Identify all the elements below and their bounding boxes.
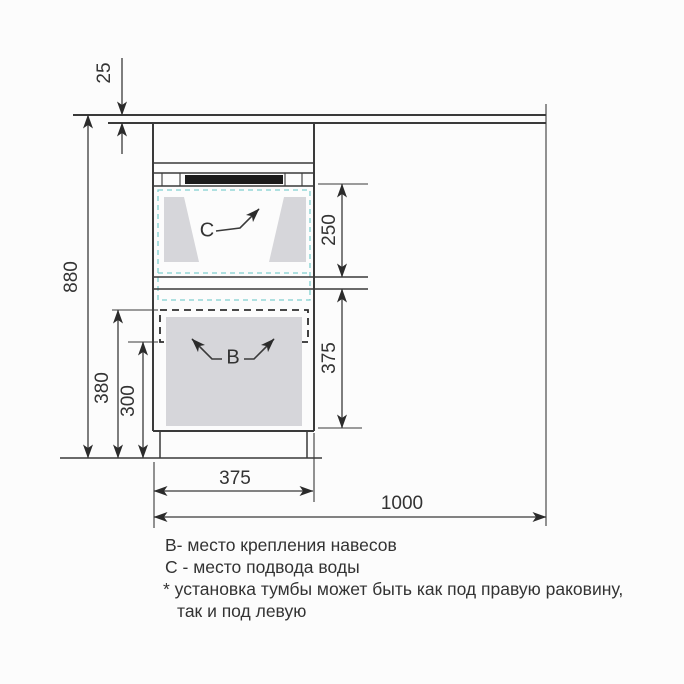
dim-door-zone: 375 xyxy=(318,289,362,428)
legend-line-water: С - место подвода воды xyxy=(165,557,360,577)
dim-1000-text: 1000 xyxy=(381,493,423,514)
legend-line-hanger: В- место крепления навесов xyxy=(165,535,397,555)
legend: В- место крепления навесов С - место под… xyxy=(163,535,623,621)
door-panel xyxy=(166,317,302,426)
dim-hanger-top-height: 380 xyxy=(92,310,118,458)
dim-380-text: 380 xyxy=(92,372,113,404)
sink-outline xyxy=(158,190,310,300)
dim-total-width: 1000 xyxy=(154,493,546,517)
vanity-installation-diagram: С В 25 880 380 300 250 375 xyxy=(0,0,684,684)
dim-25-text: 25 xyxy=(94,62,115,83)
dim-375-right-text: 375 xyxy=(319,342,340,374)
dim-hanger-bottom-height: 300 xyxy=(118,342,143,458)
section-divider xyxy=(153,277,368,289)
hanger-mount-label: В xyxy=(226,346,239,368)
water-supply-callout: С xyxy=(200,209,259,241)
technical-drawing-page: С В 25 880 380 300 250 375 xyxy=(0,0,684,684)
legend-line-note: * установка тумбы может быть как под пра… xyxy=(163,579,623,599)
dim-250-text: 250 xyxy=(319,214,340,246)
water-supply-label: С xyxy=(200,219,214,241)
drawer-handle xyxy=(185,175,283,184)
sink-bowl-right-side xyxy=(269,197,306,262)
drawer-front xyxy=(153,163,314,186)
dim-countertop-thickness: 25 xyxy=(94,58,122,154)
dim-cabinet-width: 375 xyxy=(154,433,314,528)
legend-line-note-cont: так и под левую xyxy=(177,601,306,621)
dim-300-text: 300 xyxy=(118,385,139,417)
dim-880-text: 880 xyxy=(61,261,82,293)
dim-total-height: 880 xyxy=(61,115,88,458)
countertop xyxy=(73,115,546,123)
dim-375-bottom-text: 375 xyxy=(219,468,251,489)
dim-sink-zone: 250 xyxy=(318,184,368,277)
sink-bowl-left-side xyxy=(164,197,199,262)
